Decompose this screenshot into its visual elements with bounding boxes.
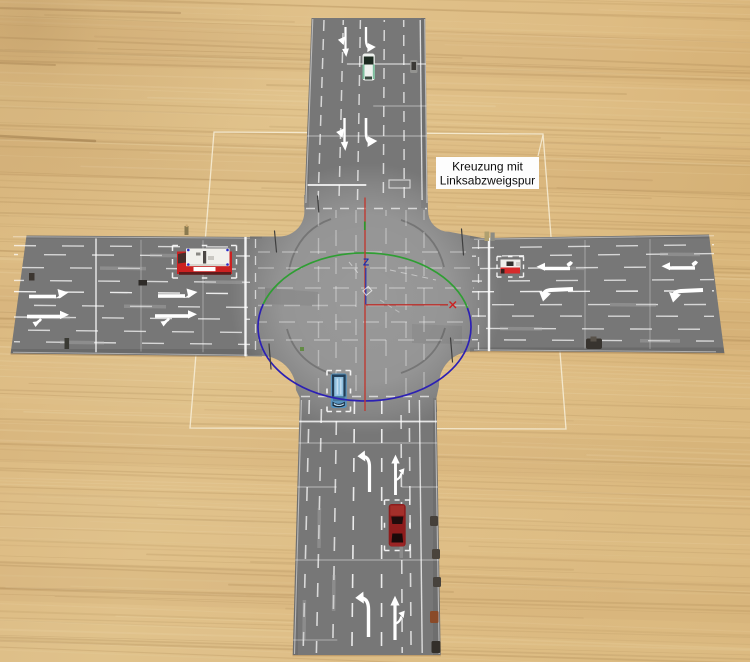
svg-text:Linksabzweigspur: Linksabzweigspur [440, 174, 535, 188]
svg-text:Kreuzung mit: Kreuzung mit [452, 160, 523, 174]
svg-text:Z: Z [363, 258, 369, 269]
